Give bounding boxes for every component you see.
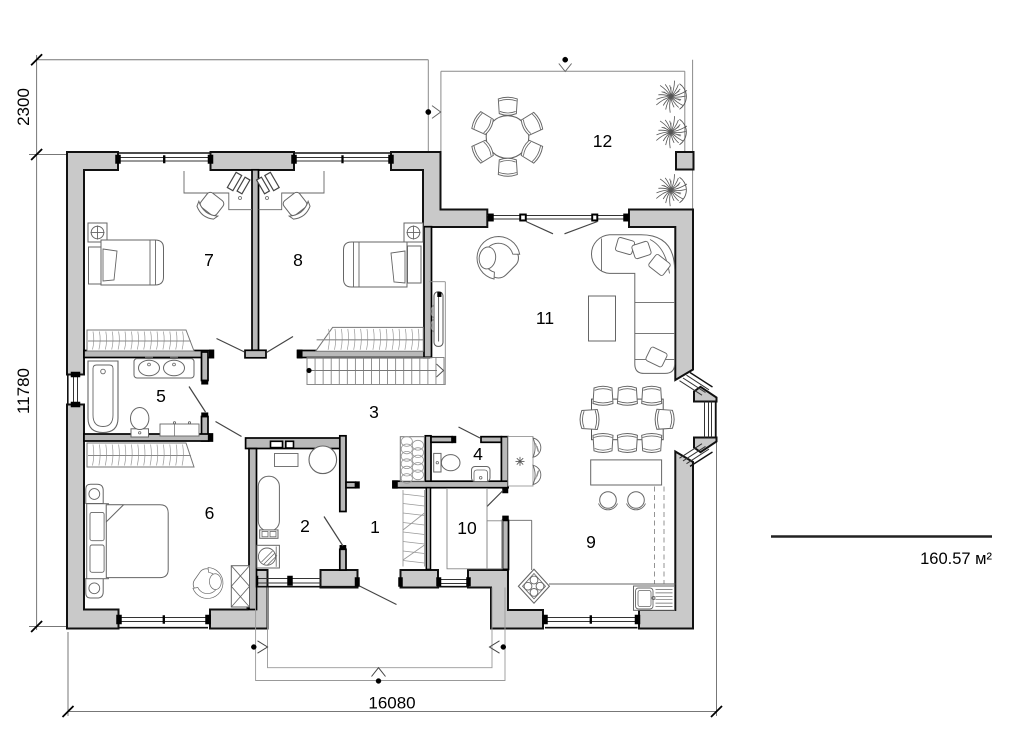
svg-text:1: 1 bbox=[370, 517, 380, 537]
svg-text:11: 11 bbox=[536, 308, 554, 328]
svg-text:2300: 2300 bbox=[14, 88, 33, 126]
svg-text:11780: 11780 bbox=[14, 368, 33, 414]
svg-text:160.57 м²: 160.57 м² bbox=[920, 550, 992, 568]
svg-text:7: 7 bbox=[204, 250, 214, 270]
svg-text:3: 3 bbox=[369, 402, 379, 422]
svg-text:12: 12 bbox=[593, 131, 612, 151]
svg-text:6: 6 bbox=[205, 503, 215, 523]
svg-text:8: 8 bbox=[293, 250, 303, 270]
svg-text:4: 4 bbox=[473, 444, 483, 464]
svg-text:5: 5 bbox=[156, 386, 166, 406]
svg-text:16080: 16080 bbox=[368, 694, 415, 713]
svg-text:9: 9 bbox=[586, 532, 596, 552]
svg-text:2: 2 bbox=[300, 516, 310, 536]
svg-text:10: 10 bbox=[457, 518, 477, 538]
